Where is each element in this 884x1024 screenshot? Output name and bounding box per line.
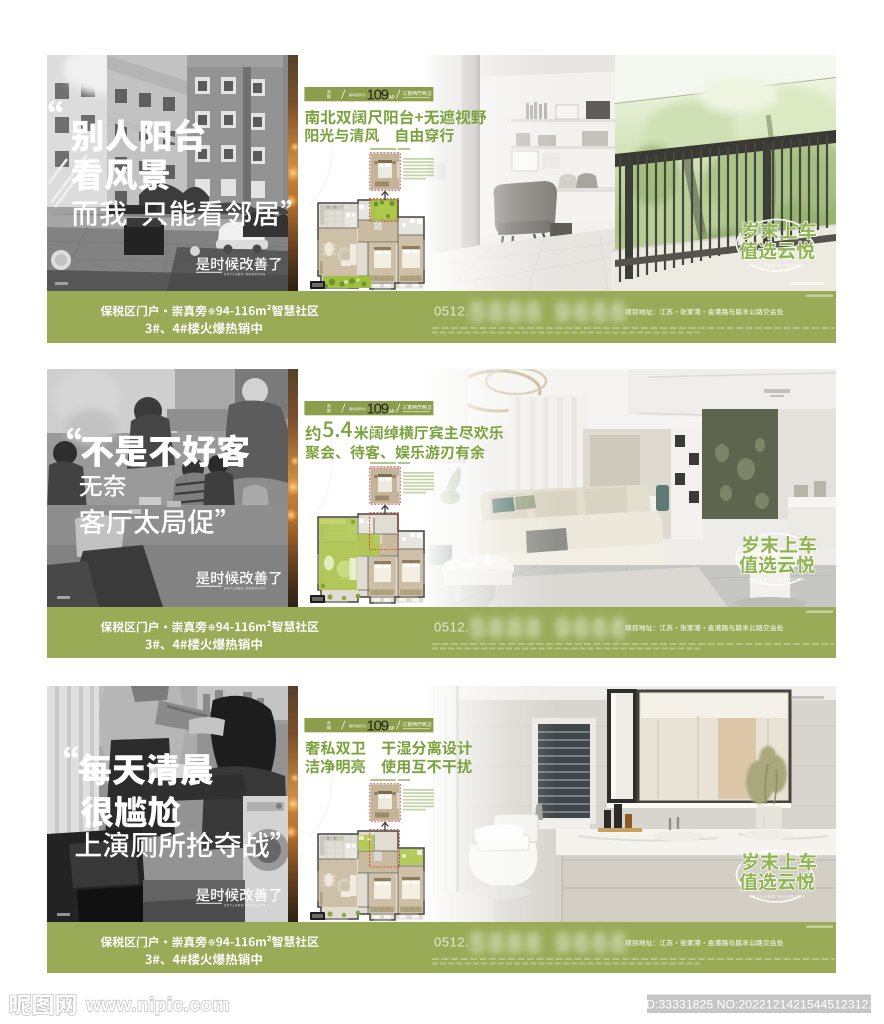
svg-text:www.nipic.com: www.nipic.com <box>85 995 230 1016</box>
svg-text:M²: M² <box>389 726 395 732</box>
svg-text:109: 109 <box>367 86 389 103</box>
svg-text:5888 9666: 5888 9666 <box>470 928 629 958</box>
svg-text:5888 9666: 5888 9666 <box>470 613 629 643</box>
svg-text:M²: M² <box>389 95 395 101</box>
svg-text:5888 9666: 5888 9666 <box>470 297 629 327</box>
svg-text:109: 109 <box>367 400 389 417</box>
svg-text:M²: M² <box>389 409 395 415</box>
svg-text:0512.: 0512. <box>434 304 469 319</box>
svg-text:109: 109 <box>367 717 389 734</box>
svg-text:0512.: 0512. <box>434 935 469 950</box>
svg-text:ID:33331825 NO:202212142154451: ID:33331825 NO:20221214215445123121 <box>643 998 876 1012</box>
svg-text:0512.: 0512. <box>434 620 469 635</box>
